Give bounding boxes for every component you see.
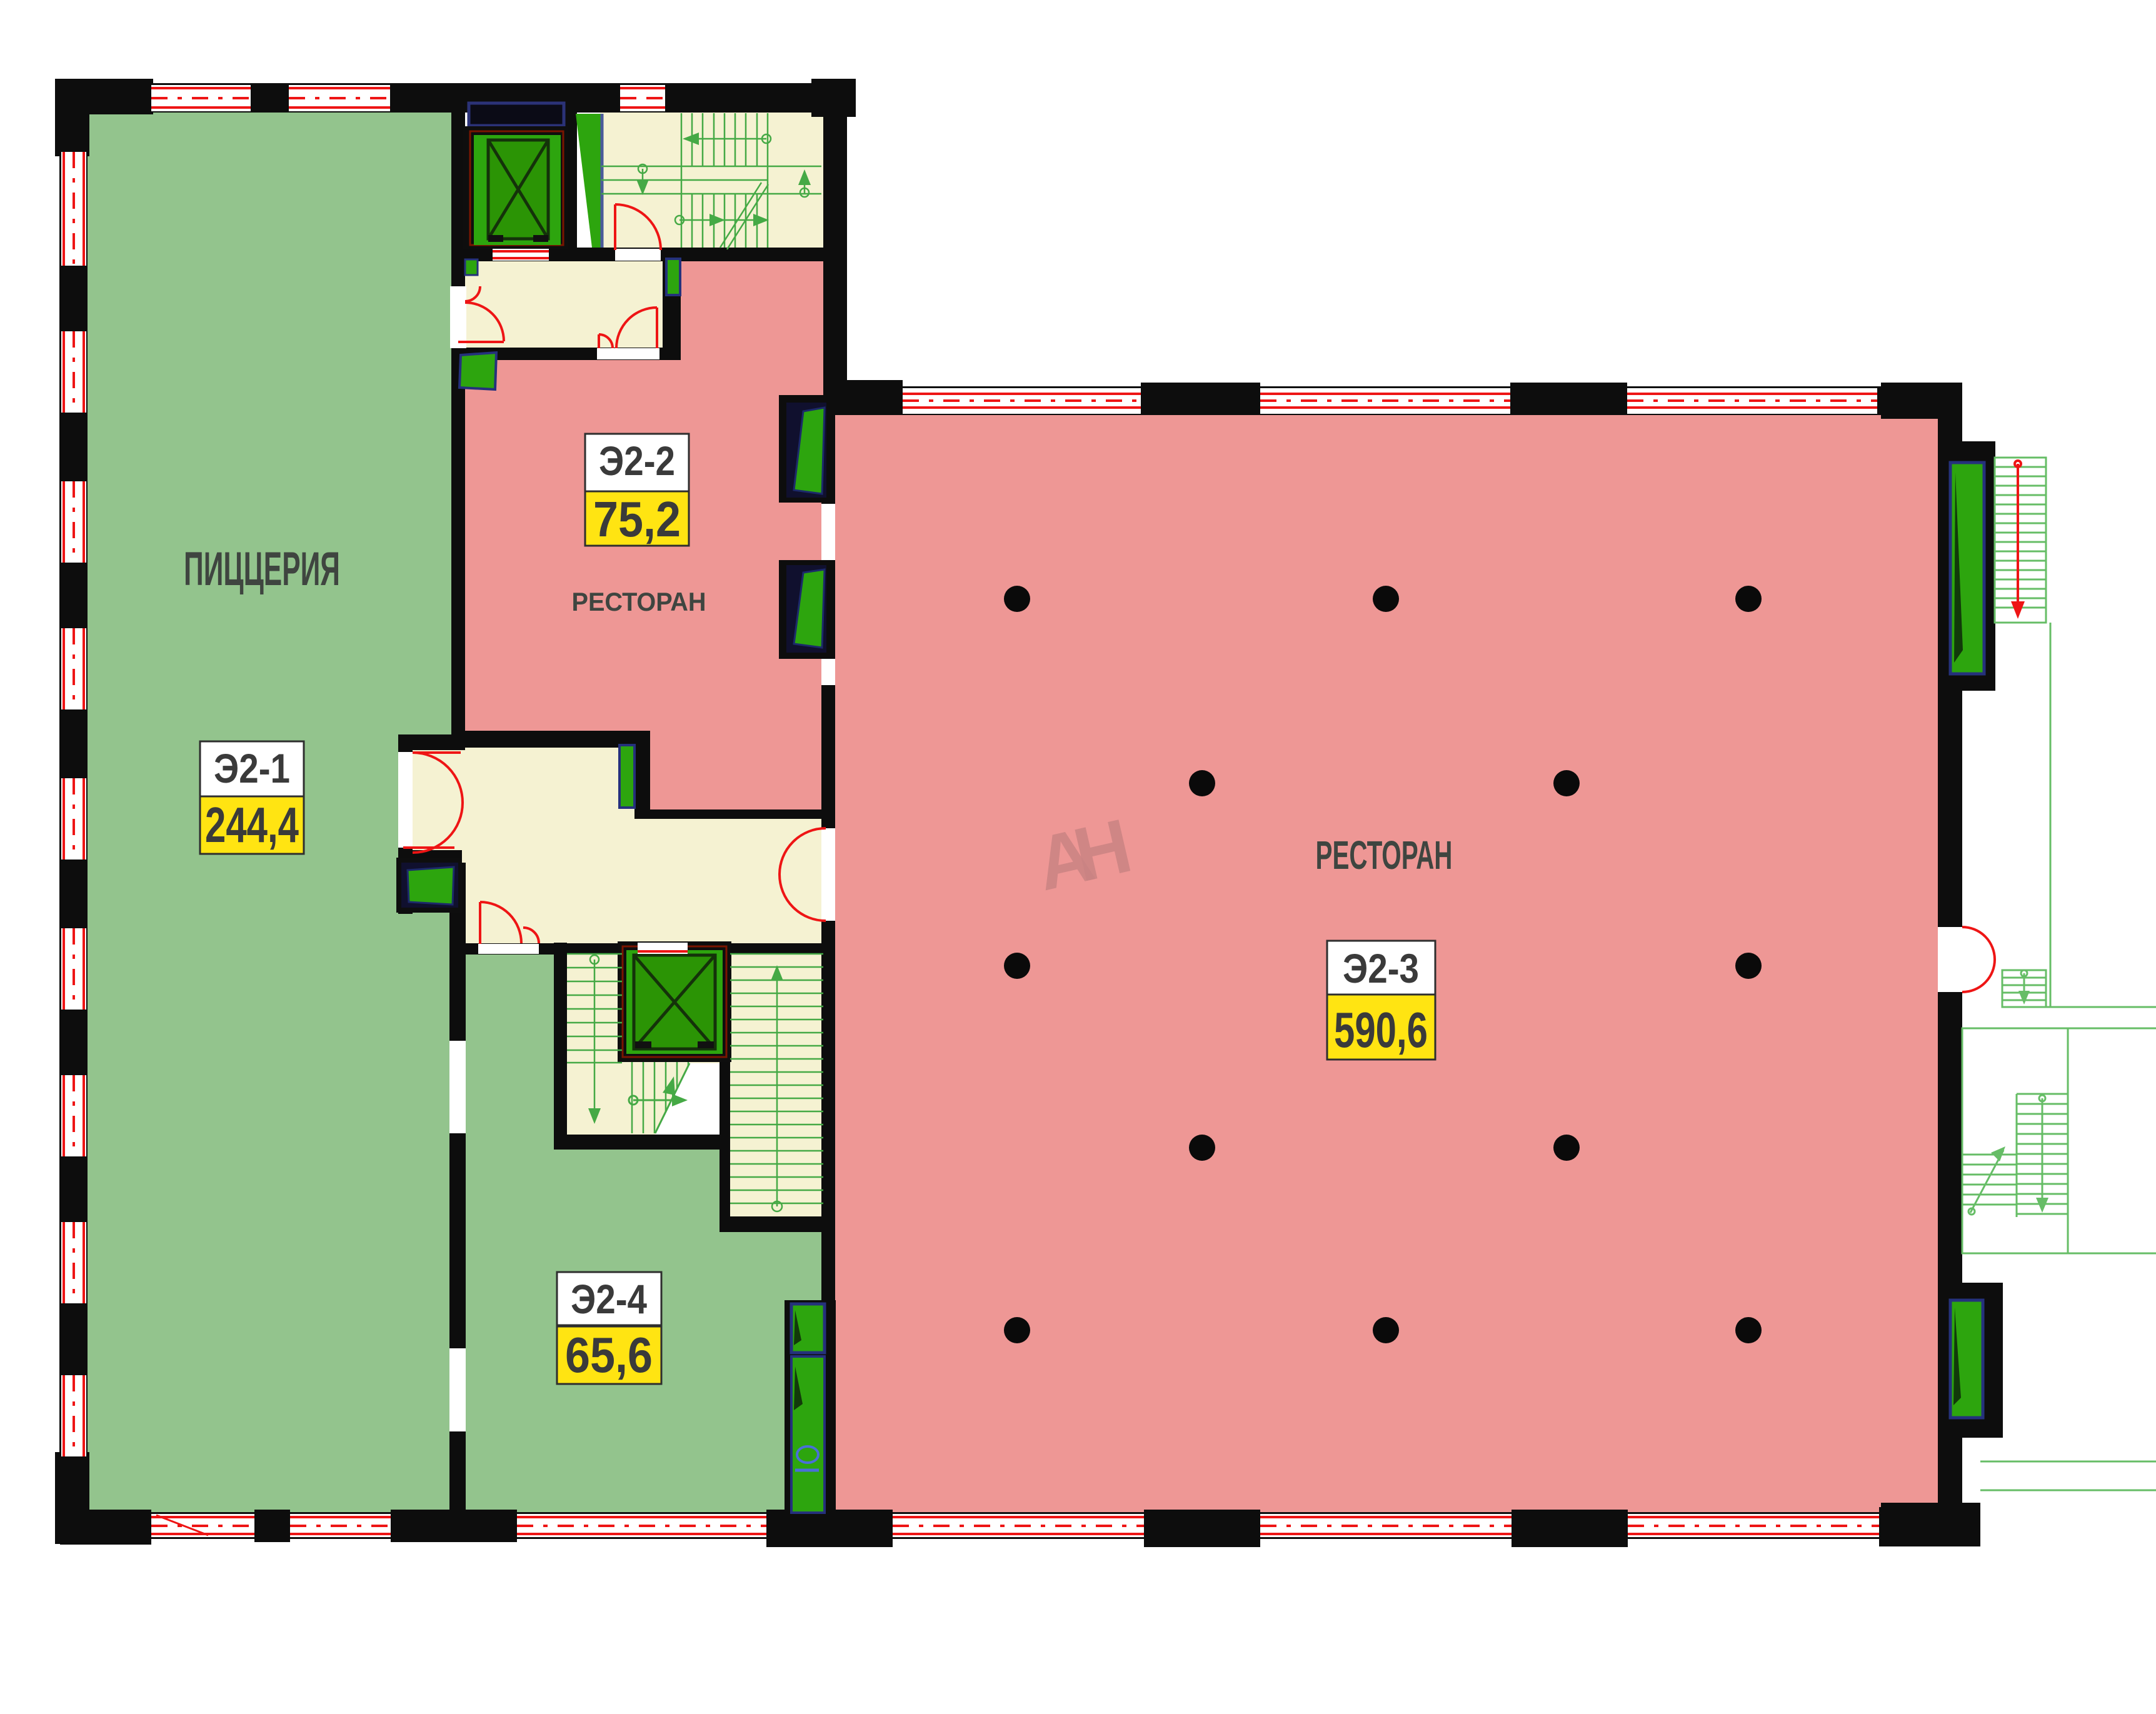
svg-text:Э2-2: Э2-2 [599,438,675,484]
svg-text:75,2: 75,2 [593,491,681,547]
svg-text:ПИЦЦЕРИЯ: ПИЦЦЕРИЯ [184,543,340,596]
svg-text:244,4: 244,4 [205,797,299,853]
svg-text:65,6: 65,6 [565,1327,653,1383]
svg-text:РЕСТОРАН: РЕСТОРАН [572,587,706,616]
svg-text:Э2-4: Э2-4 [571,1276,647,1322]
svg-text:590,6: 590,6 [1334,1002,1428,1058]
svg-text:РЕСТОРАН: РЕСТОРАН [1316,833,1453,878]
svg-text:Э2-3: Э2-3 [1343,945,1419,991]
svg-text:Э2-1: Э2-1 [214,745,290,791]
